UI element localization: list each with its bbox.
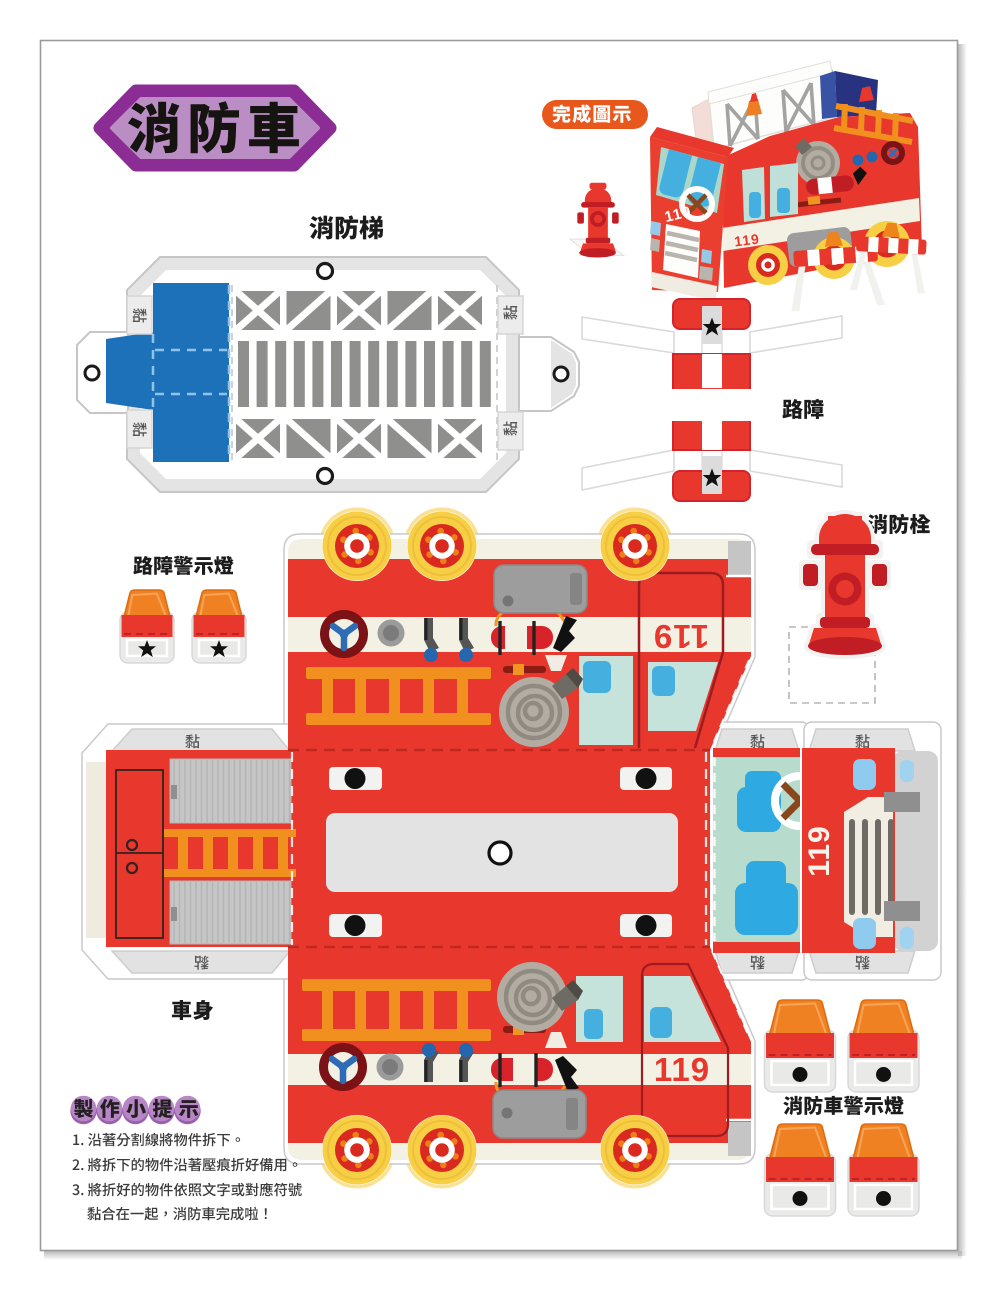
svg-text:119: 119 xyxy=(654,1051,710,1088)
svg-text:119: 119 xyxy=(653,618,709,655)
svg-text:119: 119 xyxy=(803,825,836,876)
svg-text:119: 119 xyxy=(733,231,760,250)
